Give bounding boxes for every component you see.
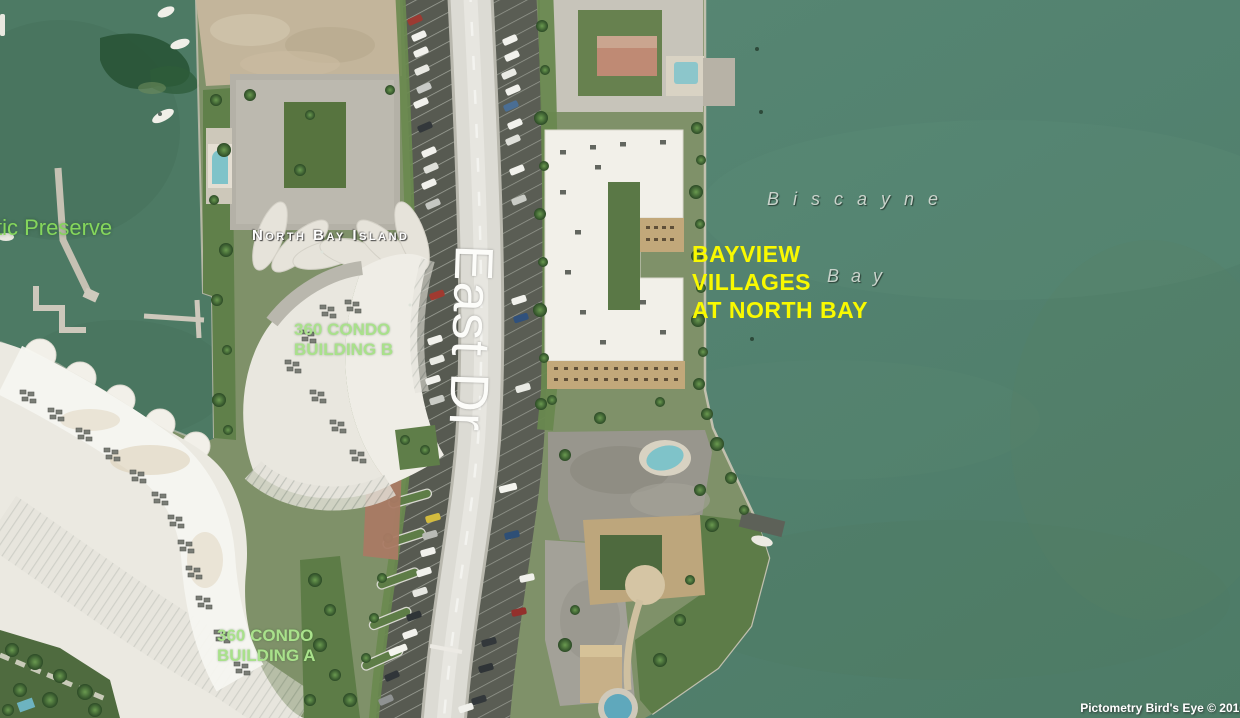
condo-building-b bbox=[243, 198, 444, 499]
island-courtyard-building bbox=[206, 74, 400, 230]
aerial-imagery bbox=[0, 0, 1240, 718]
birds-eye-map-viewport[interactable]: tic Preserve North Bay Island East Dr Bi… bbox=[0, 0, 1240, 718]
pool bbox=[674, 62, 698, 84]
courtyard bbox=[608, 182, 640, 310]
sand-path bbox=[625, 565, 665, 605]
dock bbox=[703, 58, 735, 106]
vacant-lot bbox=[196, 0, 402, 86]
